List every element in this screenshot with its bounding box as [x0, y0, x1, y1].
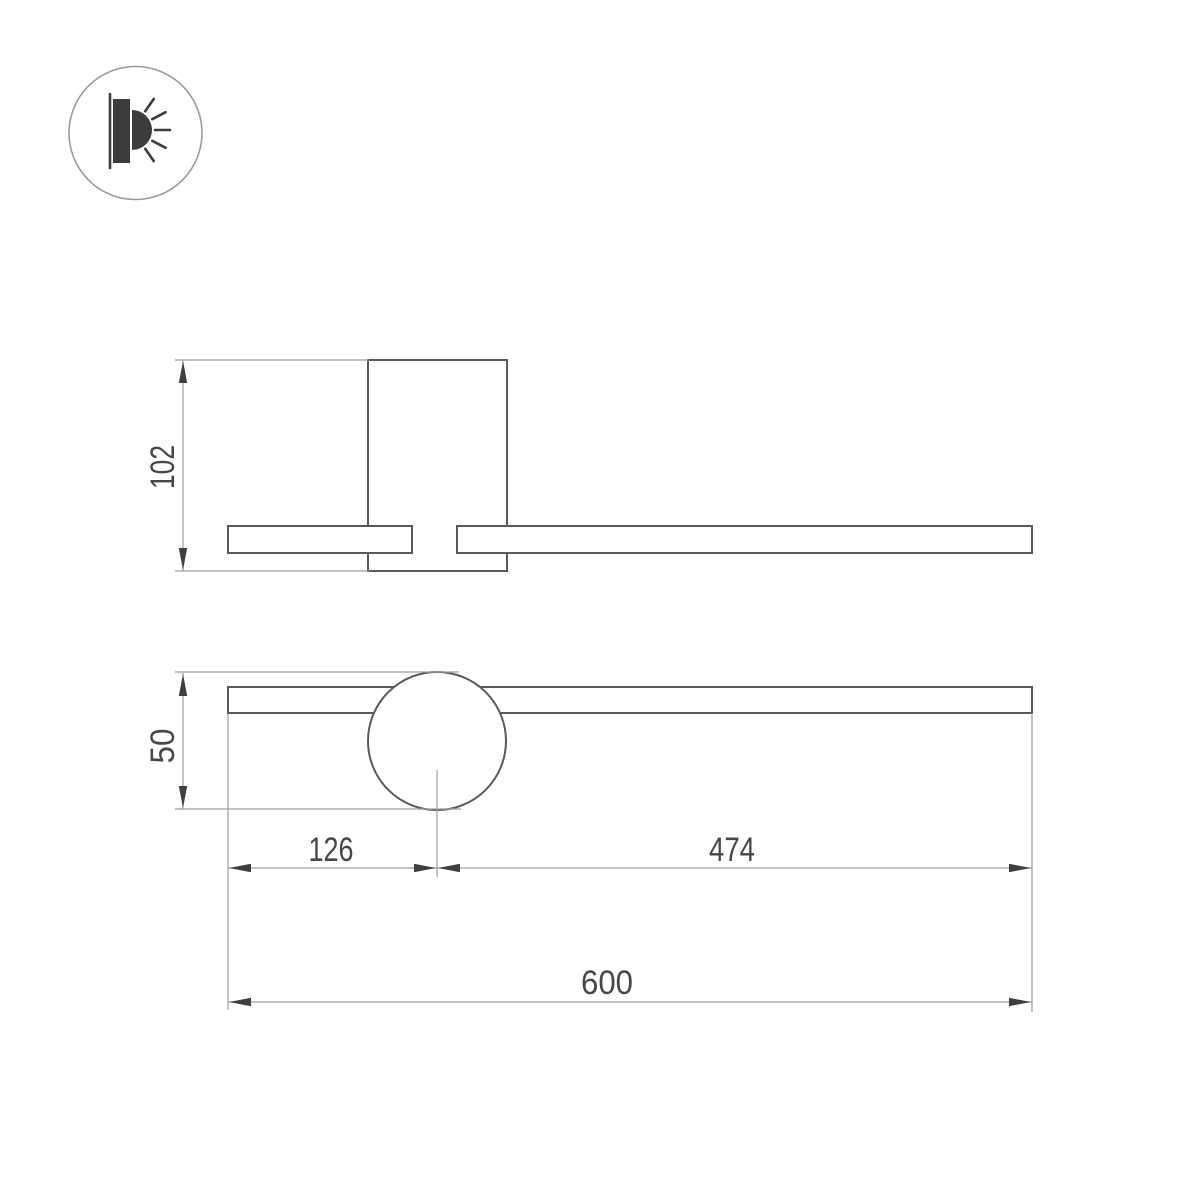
dimension-label-102: 102 — [144, 445, 182, 489]
arrowhead-up — [179, 361, 187, 383]
dimension-label-126: 126 — [309, 831, 354, 869]
lamp-bar — [228, 687, 1032, 713]
arrowhead-left — [438, 864, 460, 872]
dimension-total-width: 600 — [228, 964, 1032, 1006]
arrowhead-right — [414, 864, 436, 872]
arrowhead-right — [1009, 998, 1031, 1006]
dimension-label-474: 474 — [709, 831, 755, 869]
dimension-left-offset: 126 — [228, 831, 1032, 872]
wall-lamp-icon — [69, 67, 202, 200]
arm-right-segment — [457, 526, 1032, 553]
arrowhead-down — [179, 786, 187, 808]
arrowhead-up — [179, 674, 187, 696]
arm-left-segment — [228, 526, 412, 553]
icon-lamp-body — [113, 99, 130, 163]
front-view — [228, 672, 1032, 810]
technical-drawing-page: 102 50 126 — [0, 0, 1191, 1191]
drawing-canvas: 102 50 126 — [0, 0, 1191, 1191]
dimension-label-50: 50 — [144, 729, 182, 764]
dimension-right-span: 474 — [438, 831, 1031, 872]
dimension-label-600: 600 — [581, 964, 633, 1002]
arrowhead-down — [179, 548, 187, 570]
arrowhead-left — [229, 998, 251, 1006]
arrowhead-right — [1009, 864, 1031, 872]
arrowhead-left — [229, 864, 251, 872]
side-view — [228, 360, 1032, 571]
